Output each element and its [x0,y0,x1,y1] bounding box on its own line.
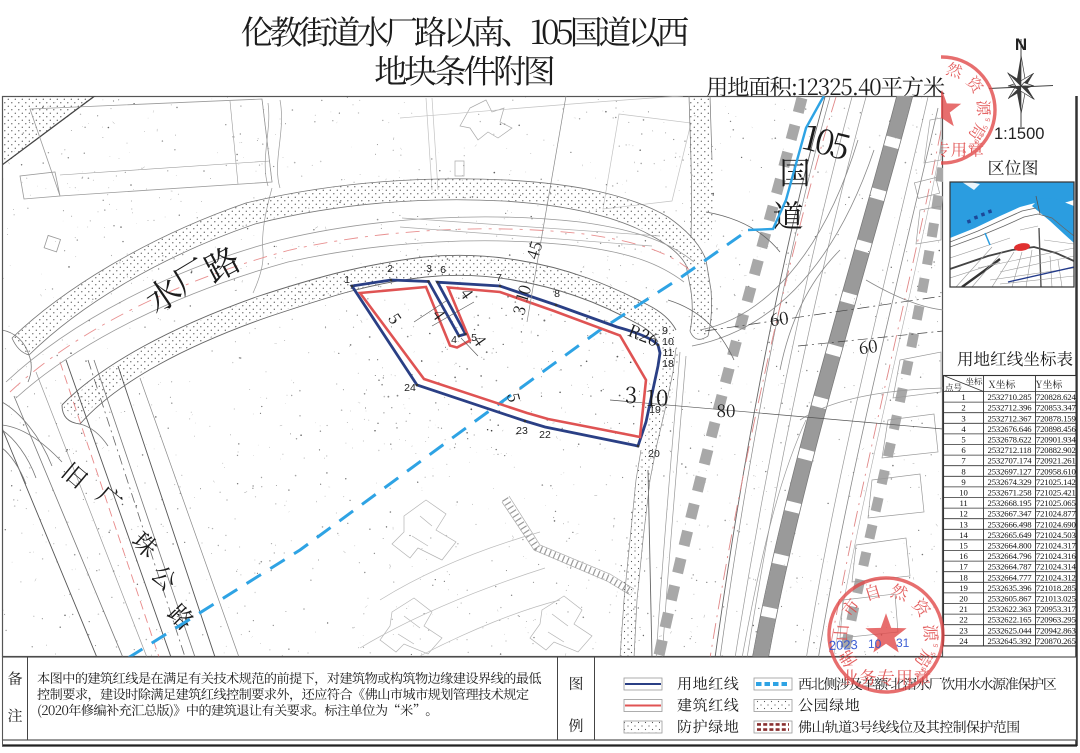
svg-text:720942.863: 720942.863 [1036,625,1076,635]
svg-text:2532707.174: 2532707.174 [988,456,1033,466]
svg-text:7: 7 [496,272,502,284]
svg-text:12: 12 [959,509,967,519]
svg-text:14: 14 [959,530,968,540]
svg-text:6: 6 [440,264,446,276]
svg-text:13: 13 [959,519,967,529]
svg-text:721018.285: 721018.285 [1036,583,1076,593]
svg-text:11: 11 [959,498,967,508]
svg-text:720953.317: 720953.317 [1036,604,1077,614]
svg-text:17: 17 [959,562,968,572]
svg-text:721013.025: 721013.025 [1036,594,1076,604]
svg-text:720853.347: 720853.347 [1036,403,1077,413]
svg-text:19: 19 [959,583,967,593]
svg-text:2532676.646: 2532676.646 [988,424,1033,434]
svg-text:721024.690: 721024.690 [1036,519,1077,529]
svg-text:2532605.867: 2532605.867 [988,594,1033,604]
svg-text:720921.261: 720921.261 [1036,456,1076,466]
svg-text:2532664.800: 2532664.800 [988,541,1033,551]
svg-text:2532668.195: 2532668.195 [988,498,1032,508]
svg-text:4: 4 [451,334,457,346]
svg-text:23: 23 [516,425,528,437]
svg-text:720901.934: 720901.934 [1036,435,1077,445]
svg-text:720963.295: 720963.295 [1036,615,1076,625]
svg-text:2532674.329: 2532674.329 [988,477,1032,487]
svg-text:2532671.258: 2532671.258 [988,488,1033,498]
svg-text:18: 18 [959,572,968,582]
svg-text:2: 2 [387,263,393,275]
svg-text:721025.065: 721025.065 [1036,498,1076,508]
svg-text:2532635.396: 2532635.396 [988,583,1033,593]
svg-text:2532712.396: 2532712.396 [988,403,1033,413]
svg-text:3: 3 [426,263,432,275]
svg-text:2532645.392: 2532645.392 [988,636,1032,646]
svg-text:0: 0 [934,635,941,639]
svg-text:2532625.044: 2532625.044 [988,625,1033,635]
svg-text:2532712.118: 2532712.118 [988,445,1032,455]
svg-text:3: 3 [961,413,965,423]
svg-text:16: 16 [959,551,968,561]
svg-text:20: 20 [648,448,660,460]
svg-text:2023: 2023 [829,637,858,653]
svg-text:720878.159: 720878.159 [1036,413,1076,423]
svg-text:2532665.649: 2532665.649 [988,530,1032,540]
svg-text:5: 5 [471,332,477,344]
svg-text:720958.610: 720958.610 [1036,466,1077,476]
svg-text:23: 23 [959,625,967,635]
svg-text:2532622.165: 2532622.165 [988,615,1032,625]
svg-text:0: 0 [986,109,993,113]
svg-text:721024.312: 721024.312 [1036,572,1076,582]
svg-text:721024.317: 721024.317 [1036,541,1077,551]
svg-text:720870.265: 720870.265 [1036,636,1076,646]
svg-text:2532664.787: 2532664.787 [988,562,1033,572]
svg-text:721025.421: 721025.421 [1036,488,1076,498]
svg-text:9: 9 [961,477,965,487]
svg-text:721025.142: 721025.142 [1036,477,1076,487]
svg-text:721024.877: 721024.877 [1036,509,1077,519]
svg-text:720828.624: 720828.624 [1036,392,1077,402]
svg-text:720882.902: 720882.902 [1036,445,1076,455]
svg-text:2: 2 [961,403,965,413]
svg-text:2532664.777: 2532664.777 [988,572,1033,582]
svg-text:18: 18 [662,358,674,370]
svg-text:24: 24 [959,636,968,646]
svg-text:5: 5 [961,435,965,445]
svg-text:15: 15 [959,541,967,551]
svg-text:31: 31 [896,636,910,650]
svg-text:2532666.498: 2532666.498 [988,519,1033,529]
svg-text:10: 10 [868,637,882,651]
svg-text:10: 10 [959,488,968,498]
svg-text:2532622.363: 2532622.363 [988,604,1032,614]
svg-text:721024.314: 721024.314 [1036,562,1077,572]
svg-text:2532712.367: 2532712.367 [988,413,1033,423]
svg-text:721024.503: 721024.503 [1036,530,1076,540]
svg-text:1: 1 [961,392,965,402]
svg-text:1: 1 [344,274,350,286]
svg-text:8: 8 [554,288,560,300]
svg-text:2532667.347: 2532667.347 [988,509,1033,519]
svg-text:2532678.622: 2532678.622 [988,435,1032,445]
svg-text:20: 20 [959,594,968,604]
svg-text:2532710.285: 2532710.285 [988,392,1032,402]
svg-text:24: 24 [404,382,416,394]
svg-text:720898.456: 720898.456 [1036,424,1077,434]
svg-text:N: N [1015,35,1027,54]
svg-text:1:1500: 1:1500 [994,125,1044,143]
svg-text:22: 22 [539,429,551,441]
svg-text:2532697.127: 2532697.127 [988,466,1033,476]
svg-text:21: 21 [959,604,967,614]
svg-text:721024.316: 721024.316 [1036,551,1077,561]
svg-text:22: 22 [959,615,967,625]
svg-text:2532664.796: 2532664.796 [988,551,1033,561]
